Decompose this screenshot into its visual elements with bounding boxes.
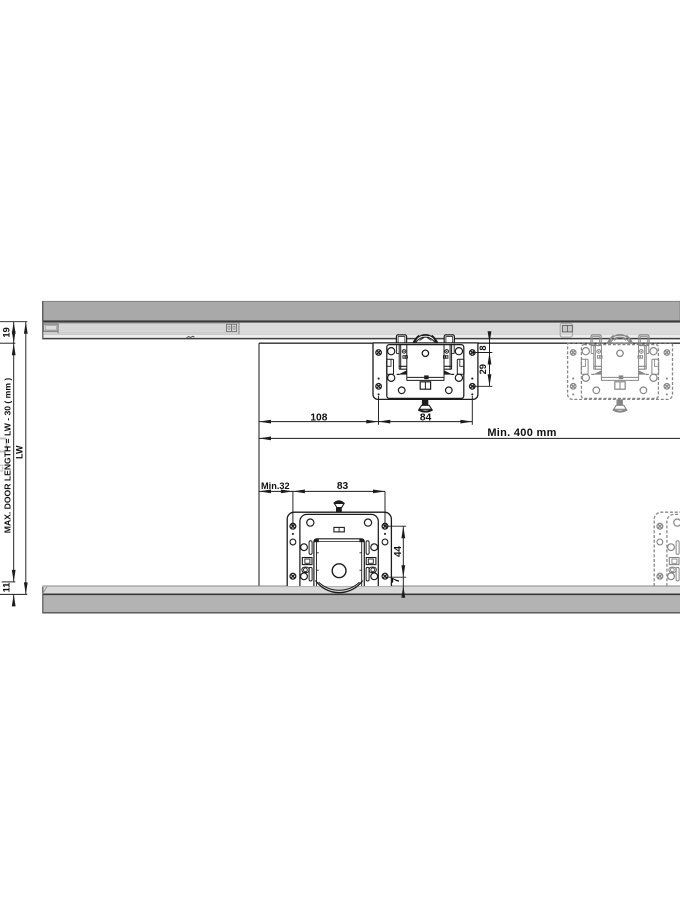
svg-text:7: 7 bbox=[391, 577, 402, 583]
svg-text:MAX. DOOR LENGTH = LW - 30 ( m: MAX. DOOR LENGTH = LW - 30 ( mm ) bbox=[2, 378, 12, 534]
svg-text:108: 108 bbox=[310, 412, 327, 423]
svg-text:LW: LW bbox=[15, 445, 25, 459]
svg-text:Min. 400 mm: Min. 400 mm bbox=[487, 427, 556, 439]
svg-text:19: 19 bbox=[1, 327, 11, 337]
svg-text:11: 11 bbox=[1, 583, 11, 593]
svg-text:83: 83 bbox=[337, 481, 349, 492]
svg-text:44: 44 bbox=[393, 546, 404, 557]
svg-text:8: 8 bbox=[478, 345, 488, 350]
svg-text:84: 84 bbox=[420, 412, 432, 423]
svg-text:29: 29 bbox=[478, 364, 488, 374]
svg-text:Min.32: Min.32 bbox=[261, 481, 290, 491]
